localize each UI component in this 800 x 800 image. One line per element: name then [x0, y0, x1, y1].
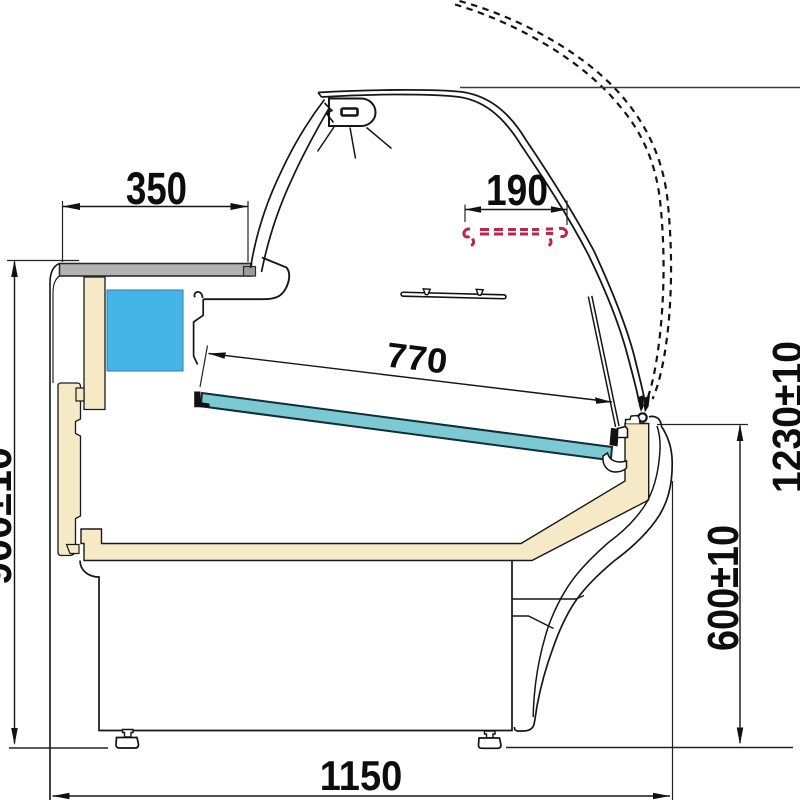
- svg-text:900±10: 900±10: [0, 447, 21, 585]
- svg-text:1230±10: 1230±10: [764, 341, 800, 493]
- svg-text:600±10: 600±10: [699, 525, 748, 651]
- svg-text:350: 350: [126, 163, 187, 214]
- svg-text:190: 190: [486, 166, 548, 215]
- svg-text:1150: 1150: [320, 752, 403, 799]
- svg-text:770: 770: [384, 336, 449, 382]
